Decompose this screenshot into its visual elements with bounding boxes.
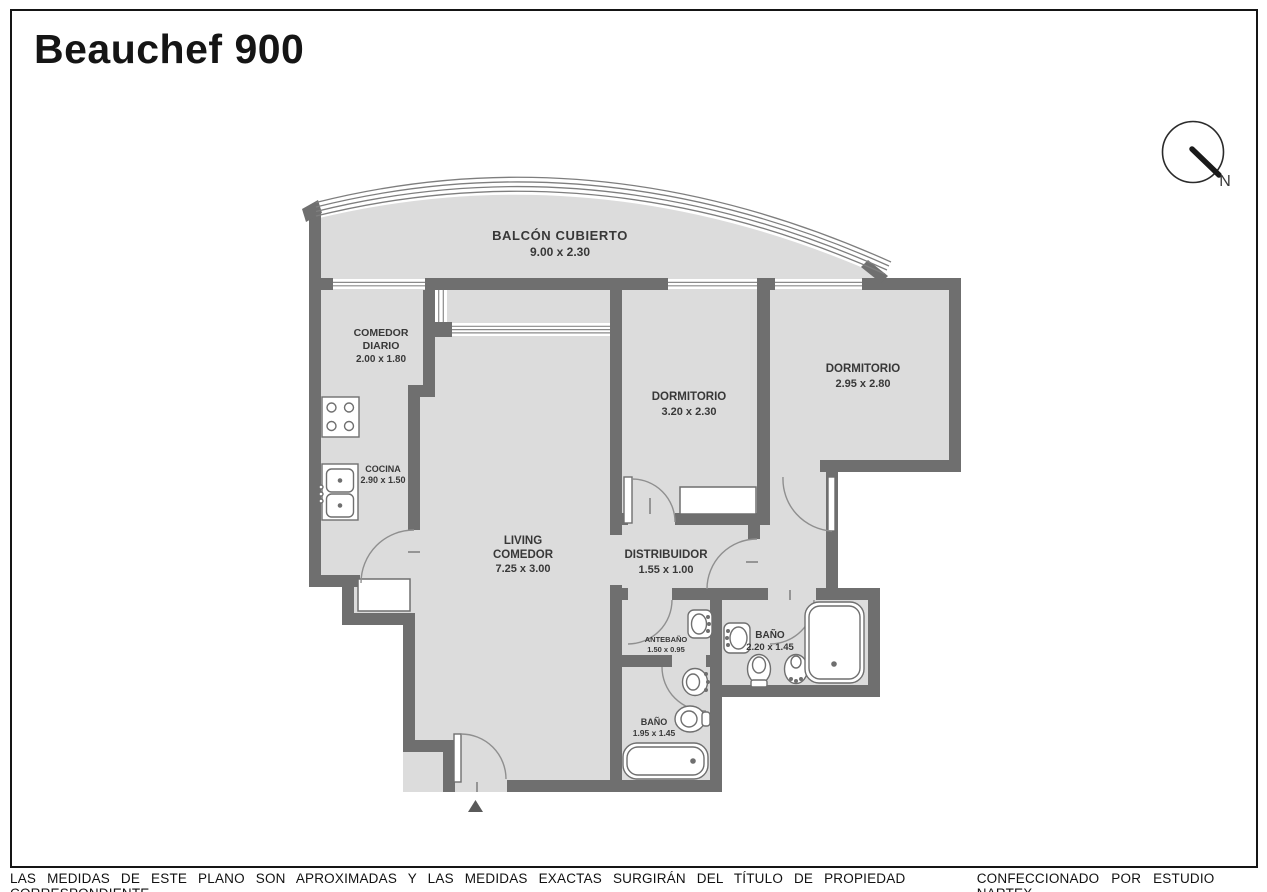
svg-text:COCINA: COCINA bbox=[365, 464, 401, 474]
svg-text:LIVING: LIVING bbox=[504, 535, 542, 547]
svg-text:2.20 x 1.45: 2.20 x 1.45 bbox=[746, 642, 794, 653]
svg-text:BALCÓN CUBIERTO: BALCÓN CUBIERTO bbox=[492, 228, 628, 243]
compass: N bbox=[1163, 122, 1231, 191]
bath-toilet bbox=[683, 669, 710, 696]
svg-text:BAÑO: BAÑO bbox=[755, 628, 785, 641]
bath-bathtub bbox=[623, 743, 708, 779]
antebano-basin bbox=[688, 610, 712, 638]
svg-text:2.00 x 1.80: 2.00 x 1.80 bbox=[356, 354, 406, 365]
svg-text:DORMITORIO: DORMITORIO bbox=[652, 391, 727, 403]
svg-text:DISTRIBUIDOR: DISTRIBUIDOR bbox=[624, 549, 708, 561]
svg-text:ANTEBAÑO: ANTEBAÑO bbox=[645, 635, 688, 644]
kitchen-sink bbox=[319, 464, 358, 520]
svg-text:3.20 x 2.30: 3.20 x 2.30 bbox=[661, 406, 716, 418]
svg-text:1.55 x 1.00: 1.55 x 1.00 bbox=[638, 564, 693, 576]
suite-bidet bbox=[785, 655, 808, 684]
floor-plan-page: Beauchef 900 bbox=[0, 0, 1267, 892]
svg-text:9.00 x 2.30: 9.00 x 2.30 bbox=[530, 245, 590, 259]
stove bbox=[322, 397, 359, 437]
svg-text:DORMITORIO: DORMITORIO bbox=[826, 363, 901, 375]
svg-text:2.95 x 2.80: 2.95 x 2.80 bbox=[835, 378, 890, 390]
label-cocina: COCINA 2.90 x 1.50 bbox=[360, 464, 405, 485]
svg-text:DIARIO: DIARIO bbox=[363, 340, 400, 352]
svg-text:BAÑO: BAÑO bbox=[641, 717, 668, 727]
svg-text:1.50 x 0.95: 1.50 x 0.95 bbox=[647, 645, 685, 654]
footer: LAS MEDIDAS DE ESTE PLANO SON APROXIMADA… bbox=[10, 871, 1258, 892]
suite-toilet bbox=[748, 655, 771, 688]
svg-text:7.25 x 3.00: 7.25 x 3.00 bbox=[495, 563, 550, 575]
floor-plan-drawing: BALCÓN CUBIERTO 9.00 x 2.30 COMEDOR DIAR… bbox=[0, 0, 1267, 892]
svg-text:1.95 x 1.45: 1.95 x 1.45 bbox=[633, 728, 676, 738]
label-antebano: ANTEBAÑO 1.50 x 0.95 bbox=[645, 635, 688, 654]
svg-text:COMEDOR: COMEDOR bbox=[354, 327, 409, 339]
suite-bathtub bbox=[805, 602, 864, 683]
compass-north-label: N bbox=[1219, 173, 1231, 190]
svg-text:COMEDOR: COMEDOR bbox=[493, 549, 554, 561]
svg-text:2.90 x 1.50: 2.90 x 1.50 bbox=[360, 475, 405, 485]
footer-disclaimer: LAS MEDIDAS DE ESTE PLANO SON APROXIMADA… bbox=[10, 871, 977, 892]
footer-credit: CONFECCIONADO POR ESTUDIO NARTEX bbox=[977, 871, 1258, 892]
entry-arrow bbox=[468, 800, 483, 812]
